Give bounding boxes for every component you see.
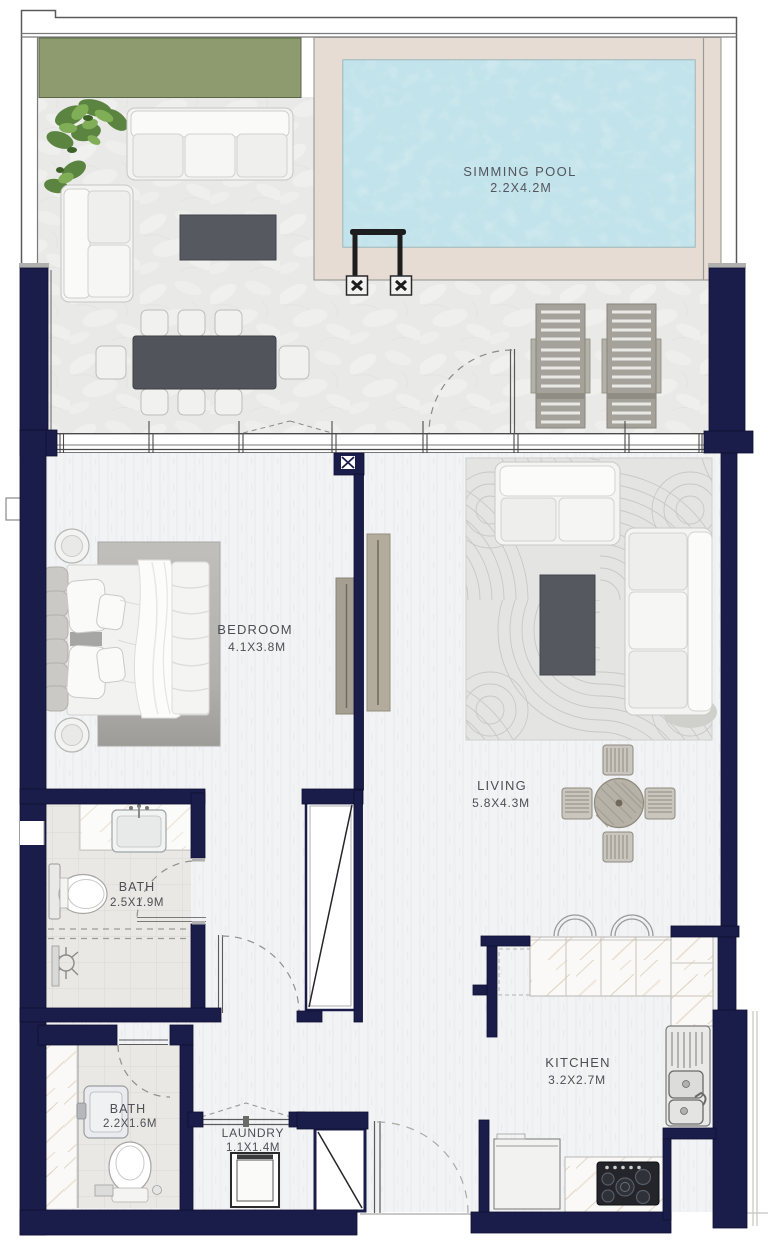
svg-text:2.2X4.2M: 2.2X4.2M <box>490 181 552 195</box>
svg-text:5.8X4.3M: 5.8X4.3M <box>472 796 530 810</box>
svg-text:2.5X1.9M: 2.5X1.9M <box>110 897 164 909</box>
svg-text:4.1X3.8M: 4.1X3.8M <box>228 640 286 654</box>
svg-text:2.2X1.6M: 2.2X1.6M <box>103 1118 157 1130</box>
svg-text:LIVING: LIVING <box>477 778 527 793</box>
svg-text:BATH: BATH <box>110 1102 146 1116</box>
svg-text:BEDROOM: BEDROOM <box>217 622 293 637</box>
svg-text:BATH: BATH <box>119 880 155 894</box>
svg-text:KITCHEN: KITCHEN <box>545 1055 610 1070</box>
svg-text:1.1X1.4M: 1.1X1.4M <box>226 1142 280 1154</box>
svg-text:SIMMING POOL: SIMMING POOL <box>463 164 577 179</box>
svg-text:LAUNDRY: LAUNDRY <box>222 1126 285 1140</box>
svg-text:3.2X2.7M: 3.2X2.7M <box>548 1073 606 1087</box>
